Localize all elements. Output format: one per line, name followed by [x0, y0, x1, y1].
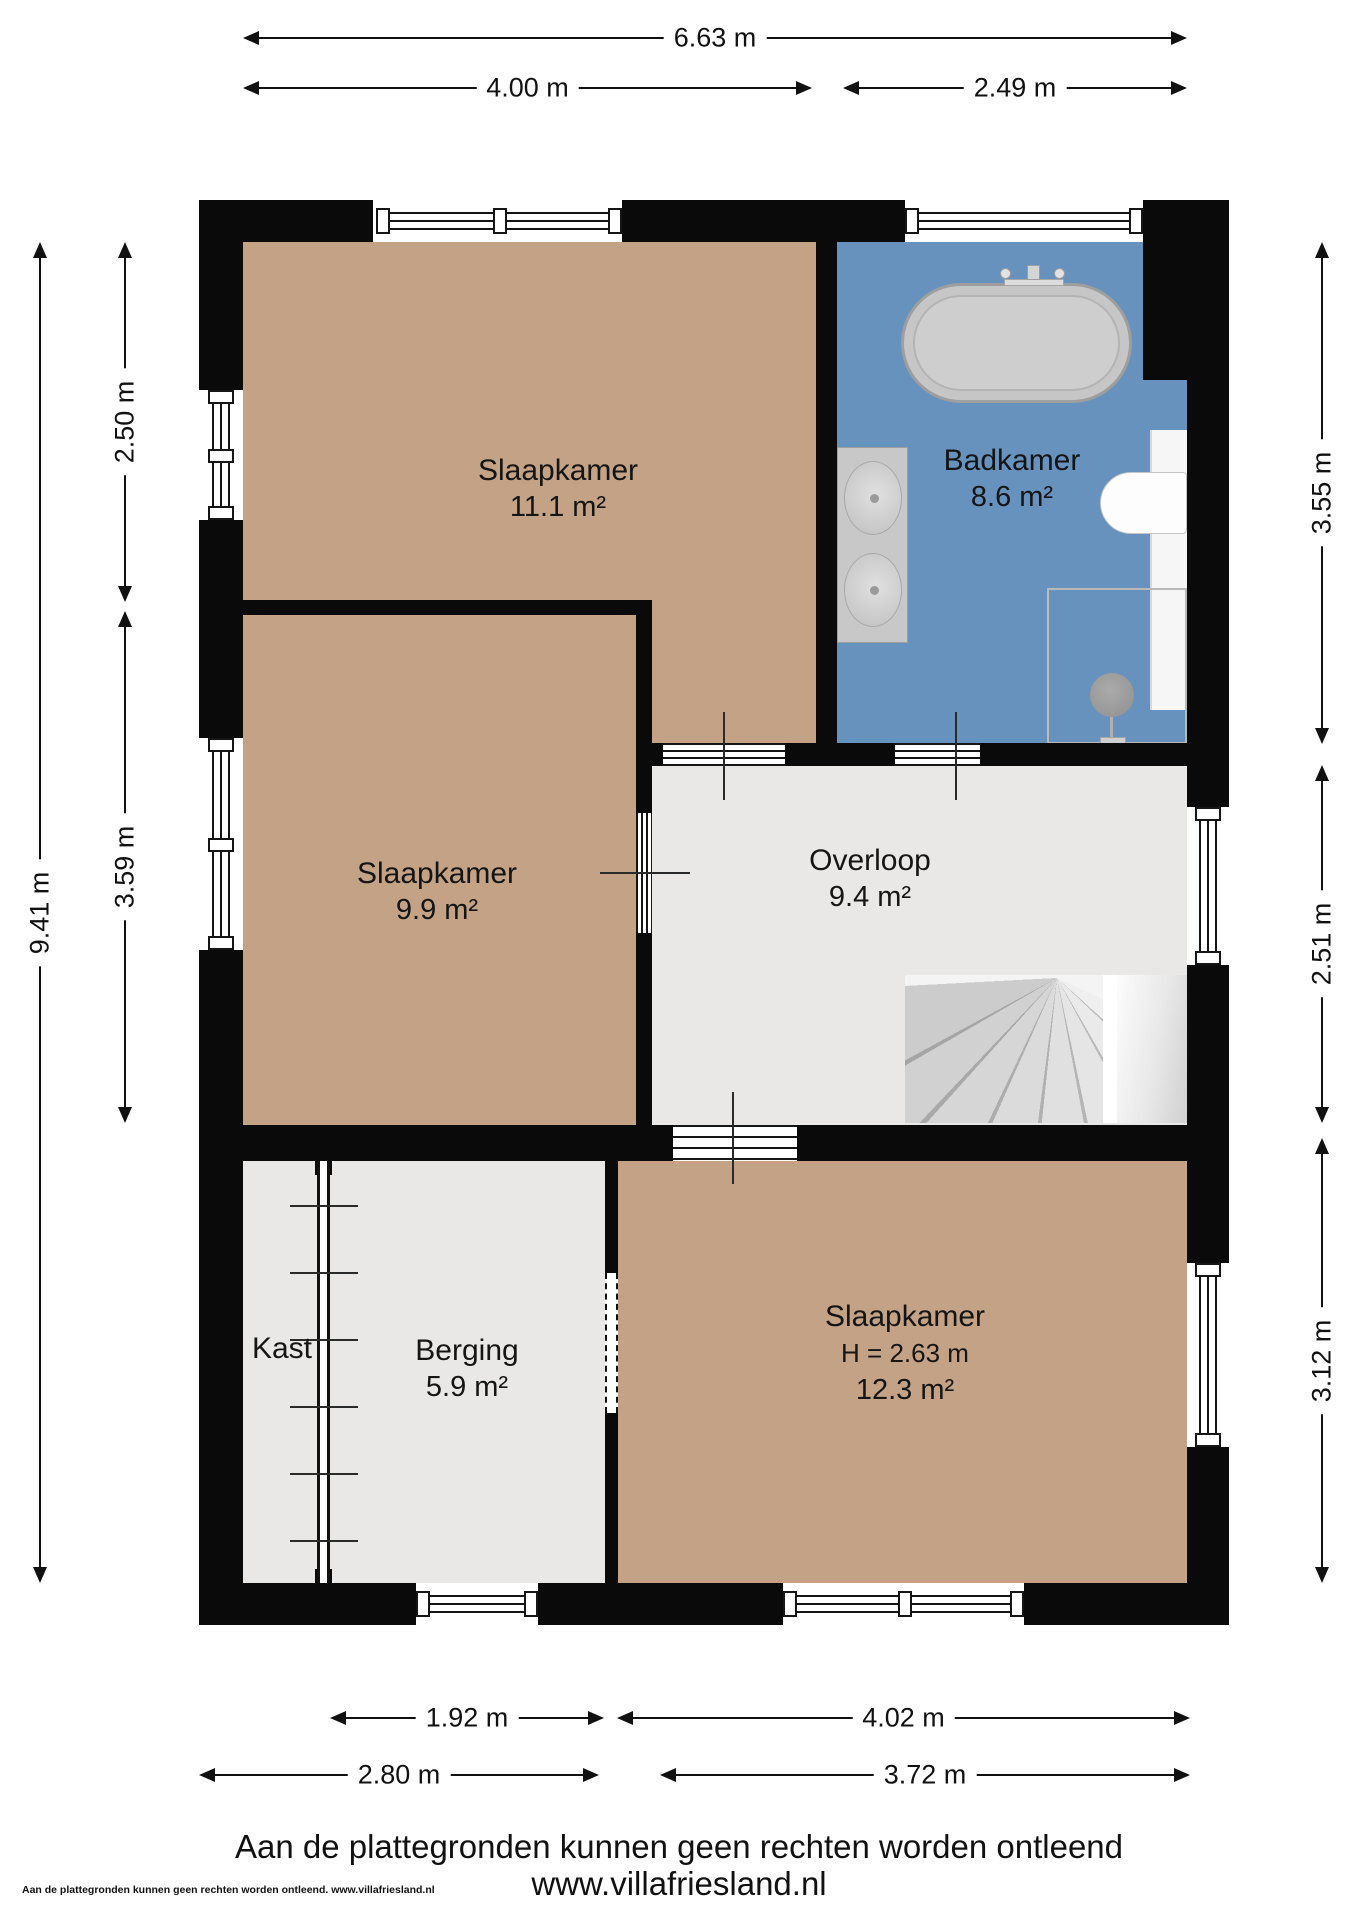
- window-frame-cap: [376, 208, 390, 234]
- fineprint-disclaimer: Aan de plattegronden kunnen geen rechten…: [22, 1884, 435, 1896]
- sliding-door-tick: [290, 1272, 358, 1274]
- window-frame-cap: [208, 936, 234, 950]
- sliding-door-tick: [290, 1406, 358, 1408]
- wall-segment: [1187, 200, 1229, 767]
- room-label-kast: Kast: [252, 1330, 312, 1367]
- bathtub-faucet: [1000, 265, 1066, 287]
- dimension-left-middle: 3.59 m: [111, 611, 139, 1123]
- wall-segment: [199, 950, 243, 1625]
- dimension-right-middle: 2.51 m: [1308, 765, 1336, 1123]
- shower-head: [1090, 673, 1134, 717]
- wall-segment: [1187, 1447, 1229, 1625]
- window-mullion: [898, 1591, 912, 1617]
- window: [905, 200, 1143, 242]
- window-glazing: [420, 1595, 534, 1613]
- window-frame-cap: [208, 738, 234, 752]
- window-mullion: [208, 838, 234, 852]
- wall-segment: [980, 743, 1187, 766]
- wall-segment: [199, 1583, 416, 1625]
- dimension-label: 2.51 m: [1307, 891, 1338, 998]
- arrow-left-icon: [243, 31, 259, 45]
- wall-segment: [538, 1583, 783, 1625]
- wall-segment: [243, 600, 652, 615]
- room-label-badkamer: Badkamer 8.6 m²: [944, 442, 1081, 516]
- room-floor-kast: [243, 1161, 317, 1583]
- window-frame-cap: [1195, 807, 1221, 821]
- dimension-label: 3.72 m: [874, 1760, 977, 1791]
- window-glazing: [1199, 1267, 1217, 1443]
- wall-segment: [636, 600, 652, 813]
- wall-segment: [785, 743, 895, 766]
- dimension-bottom-inner-left: 1.92 m: [330, 1704, 604, 1732]
- floor-plan: Slaapkamer 11.1 m² Badkamer 8.6 m² Slaap…: [0, 0, 1358, 1920]
- dimension-label: 2.49 m: [964, 73, 1067, 104]
- window-frame-cap: [1195, 1433, 1221, 1447]
- wall-segment: [618, 1125, 673, 1161]
- wall-segment: [199, 1125, 618, 1161]
- dimension-label: 3.12 m: [1307, 1307, 1338, 1414]
- room-area: 5.9 m²: [415, 1369, 518, 1406]
- window: [199, 738, 243, 950]
- wall-segment: [1187, 767, 1229, 807]
- staircase: [905, 975, 1187, 1123]
- arrow-down-icon: [33, 1567, 47, 1583]
- sliding-door-kast: [317, 1161, 330, 1583]
- room-label-berging: Berging 5.9 m²: [415, 1332, 518, 1406]
- sink-basin: [844, 553, 902, 627]
- room-floor-slaapkamer-top-leg: [652, 600, 816, 743]
- dimension-label: 3.55 m: [1307, 440, 1338, 547]
- staircase-rail-gap: [1103, 975, 1117, 1123]
- room-name: Overloop: [809, 842, 931, 879]
- arrow-up-icon: [33, 242, 47, 258]
- sliding-door-tick: [290, 1540, 358, 1542]
- dimension-bottom-inner-right: 4.02 m: [617, 1704, 1190, 1732]
- window-frame-cap: [608, 208, 622, 234]
- dimension-label: 4.00 m: [476, 73, 579, 104]
- dimension-label: 2.80 m: [348, 1760, 451, 1791]
- window-frame-cap: [524, 1591, 538, 1617]
- room-ceiling-height: H = 2.63 m: [825, 1335, 985, 1372]
- wall-segment: [199, 200, 243, 390]
- wall-segment: [816, 242, 837, 743]
- dimension-bottom-outer-left: 2.80 m: [199, 1761, 599, 1789]
- window-frame-cap: [783, 1591, 797, 1617]
- window-frame-cap: [1195, 951, 1221, 965]
- room-floor-slaapkamer-top: [243, 242, 816, 600]
- wall-segment: [797, 1125, 1187, 1161]
- wall-segment: [199, 520, 243, 738]
- door-opening: [895, 743, 980, 766]
- dimension-left-upper: 2.50 m: [111, 242, 139, 602]
- dimension-right-upper: 3.55 m: [1308, 242, 1336, 744]
- room-area: 11.1 m²: [478, 489, 638, 526]
- window-frame-cap: [208, 390, 234, 404]
- dimension-label: 1.92 m: [416, 1703, 519, 1734]
- window-mullion: [208, 449, 234, 463]
- sink-basin: [844, 461, 902, 535]
- dimension-top-right: 2.49 m: [843, 74, 1187, 102]
- room-name: Slaapkamer: [825, 1298, 985, 1335]
- window-frame-cap: [1129, 208, 1143, 234]
- window: [376, 200, 622, 242]
- window-frame-cap: [208, 506, 234, 520]
- room-label-slaapkamer-mid: Slaapkamer 9.9 m²: [357, 855, 517, 929]
- dimension-label: 2.50 m: [110, 369, 141, 476]
- sliding-door-tick: [290, 1473, 358, 1475]
- staircase-upper-flight: [1117, 975, 1187, 1123]
- window: [199, 390, 243, 520]
- staircase-winders: [905, 975, 1105, 1123]
- double-sink-vanity: [837, 447, 908, 643]
- window-glazing: [1199, 811, 1217, 961]
- wall-segment: [605, 1413, 618, 1583]
- dimension-bottom-outer-right: 3.72 m: [660, 1761, 1190, 1789]
- bathtub: [901, 283, 1132, 403]
- window-frame-cap: [1010, 1591, 1024, 1617]
- wall-segment: [605, 1161, 618, 1273]
- footer-disclaimer: Aan de plattegronden kunnen geen rechten…: [0, 1828, 1358, 1865]
- shower-enclosure: [1047, 588, 1187, 744]
- window: [1187, 807, 1229, 965]
- window-frame-cap: [416, 1591, 430, 1617]
- window: [416, 1583, 538, 1625]
- room-name: Badkamer: [944, 442, 1081, 479]
- room-area: 9.9 m²: [357, 892, 517, 929]
- room-name: Slaapkamer: [357, 855, 517, 892]
- room-label-overloop: Overloop 9.4 m²: [809, 842, 931, 916]
- window-glazing: [909, 212, 1139, 230]
- dimension-top-left: 4.00 m: [243, 74, 812, 102]
- dimension-label: 9.41 m: [25, 859, 56, 966]
- window: [1187, 1263, 1229, 1447]
- door-swing-line: [732, 1092, 734, 1184]
- room-name: Slaapkamer: [478, 452, 638, 489]
- dimension-label: 4.02 m: [852, 1703, 955, 1734]
- room-name: Berging: [415, 1332, 518, 1369]
- dimension-label: 6.63 m: [664, 23, 767, 54]
- door-opening: [673, 1125, 797, 1161]
- wall-segment: [636, 933, 652, 1125]
- dashed-opening: [605, 1273, 618, 1413]
- dimension-right-lower: 3.12 m: [1308, 1138, 1336, 1583]
- room-label-slaapkamer-top: Slaapkamer 11.1 m²: [478, 452, 638, 526]
- room-area: 9.4 m²: [809, 879, 931, 916]
- dimension-label: 3.59 m: [110, 814, 141, 921]
- door-swing-line: [600, 872, 690, 874]
- wall-segment: [1187, 965, 1229, 1263]
- arrow-right-icon: [1171, 31, 1187, 45]
- window: [783, 1583, 1024, 1625]
- wall-segment: [620, 200, 905, 242]
- room-area: 8.6 m²: [944, 479, 1081, 516]
- wall-segment: [1143, 200, 1187, 380]
- room-label-slaapkamer-bottom: Slaapkamer H = 2.63 m 12.3 m²: [825, 1298, 985, 1409]
- window-frame-cap: [1195, 1263, 1221, 1277]
- dimension-left-total: 9.41 m: [26, 242, 54, 1583]
- bathtub-inner: [913, 295, 1120, 391]
- dimension-top-total: 6.63 m: [243, 24, 1187, 52]
- room-area: 12.3 m²: [825, 1372, 985, 1409]
- door-swing-line: [723, 712, 725, 800]
- door-swing-line: [955, 712, 957, 800]
- window-frame-cap: [905, 208, 919, 234]
- sliding-door-tick: [290, 1205, 358, 1207]
- toilet: [1100, 472, 1187, 534]
- window-mullion: [493, 208, 507, 234]
- room-name: Kast: [252, 1330, 312, 1367]
